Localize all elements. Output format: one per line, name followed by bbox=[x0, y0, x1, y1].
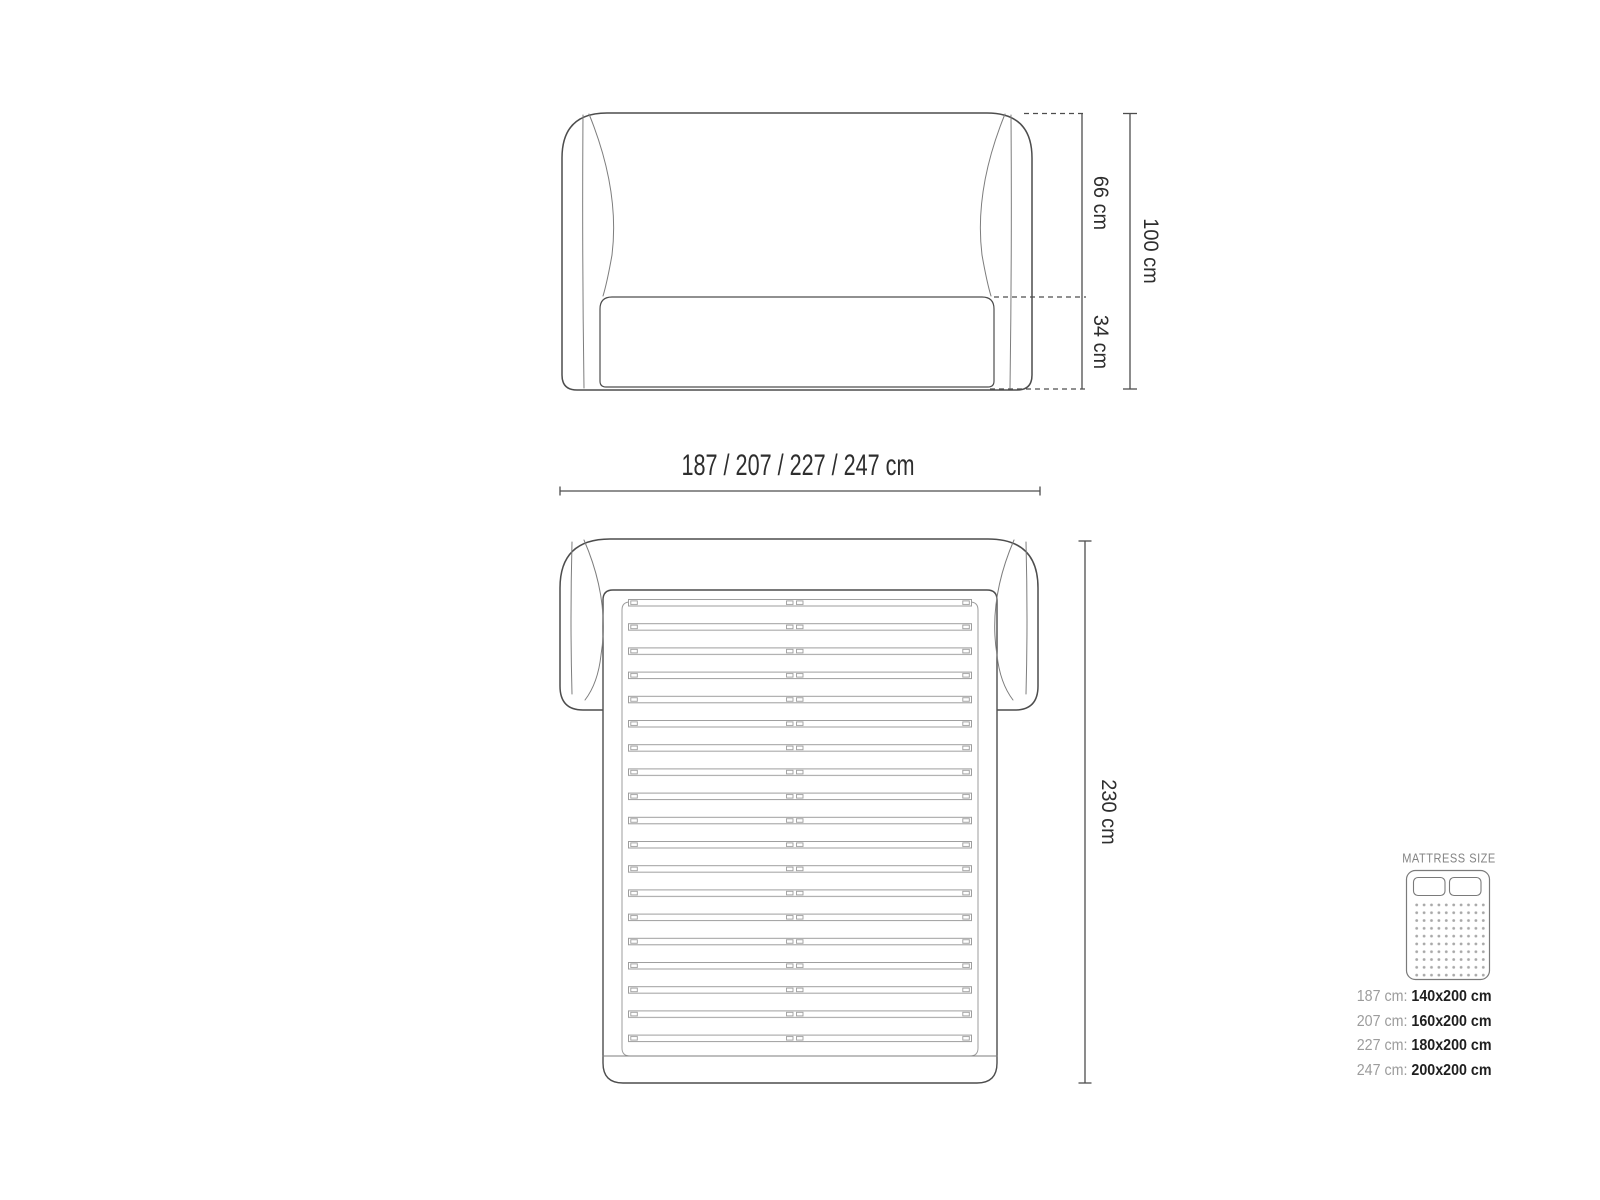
legend-frame-width: 187 cm: bbox=[1357, 988, 1408, 1005]
mattress-icon-tufting-dots bbox=[1413, 901, 1486, 977]
legend-row: 227 cm: 180x200 cm bbox=[1357, 1034, 1492, 1059]
mattress-size-legend: 187 cm: 140x200 cm 207 cm: 160x200 cm 22… bbox=[1357, 985, 1492, 1083]
mattress-icon-pillow-left bbox=[1414, 878, 1446, 896]
legend-mattress-size: 200x200 cm bbox=[1412, 1062, 1492, 1079]
legend-title: MATTRESS SIZE bbox=[1402, 851, 1496, 866]
mattress-icon-pillow-right bbox=[1450, 878, 1482, 896]
top-view-drawing bbox=[560, 539, 1038, 1083]
dim-label-base-height: 34 cm bbox=[1088, 315, 1112, 369]
legend-mattress-size: 180x200 cm bbox=[1412, 1037, 1492, 1054]
legend-mattress-size: 140x200 cm bbox=[1412, 988, 1492, 1005]
slat-area bbox=[628, 599, 972, 1043]
mattress-icon bbox=[1407, 871, 1490, 980]
depth-dimension-line bbox=[1079, 541, 1092, 1083]
bed-dimensions-diagram: 66 cm 34 cm 100 cm 187 / 207 / 227 / 247… bbox=[0, 0, 1600, 1200]
front-base-box bbox=[600, 297, 994, 387]
dim-label-headboard-height: 66 cm bbox=[1088, 176, 1112, 230]
legend-row: 247 cm: 200x200 cm bbox=[1357, 1059, 1492, 1084]
front-view-drawing bbox=[562, 113, 1032, 390]
legend-frame-width: 207 cm: bbox=[1357, 1013, 1408, 1030]
dim-label-depth: 230 cm bbox=[1096, 779, 1120, 844]
dim-label-width-options: 187 / 207 / 227 / 247 cm bbox=[682, 449, 915, 483]
legend-mattress-size: 160x200 cm bbox=[1412, 1013, 1492, 1030]
dim-label-total-height: 100 cm bbox=[1138, 218, 1162, 283]
legend-frame-width: 247 cm: bbox=[1357, 1062, 1408, 1079]
legend-row: 187 cm: 140x200 cm bbox=[1357, 985, 1492, 1010]
legend-frame-width: 227 cm: bbox=[1357, 1037, 1408, 1054]
width-dimension-line bbox=[560, 487, 1040, 496]
legend-row: 207 cm: 160x200 cm bbox=[1357, 1010, 1492, 1035]
